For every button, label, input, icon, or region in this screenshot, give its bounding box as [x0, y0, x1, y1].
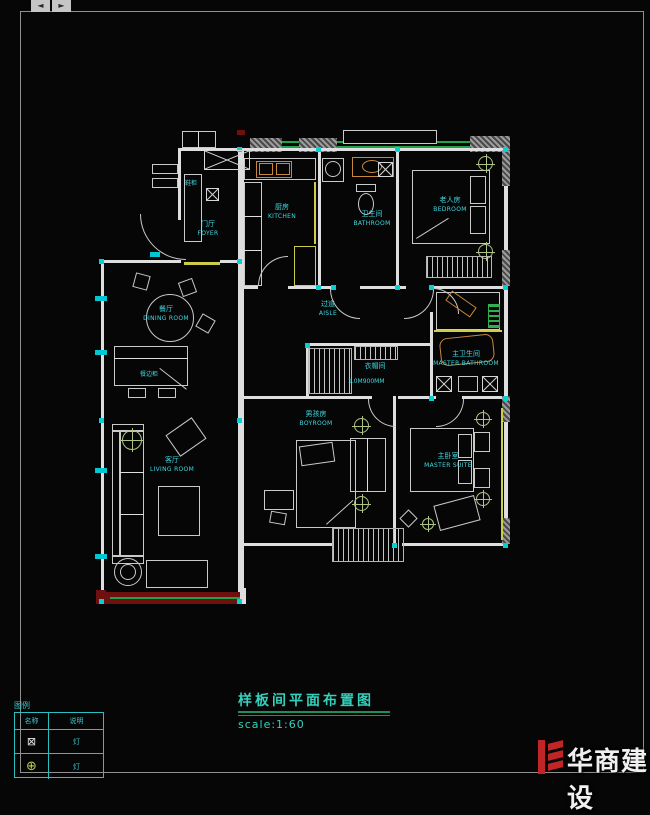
drawing-title: 样板间平面布置图 [238, 690, 374, 710]
window-tick [95, 554, 107, 559]
vent-shaft-icon [378, 162, 393, 177]
grip [503, 396, 508, 401]
wall-column [502, 518, 510, 544]
room-label-living-room: 客厅 LIVING ROOM [138, 456, 206, 474]
coffee-table [158, 486, 200, 536]
legend-header-desc: 说明 [49, 713, 104, 730]
floor-drain-icon [206, 188, 219, 201]
ceiling-lamp-icon [422, 518, 434, 530]
bedroom-bench [433, 495, 480, 531]
grip [395, 285, 400, 290]
balcony-rail [343, 130, 437, 144]
room-label-dining: 餐厅 DINING ROOM [132, 305, 200, 323]
legend-symbol-box-x-icon: ⊠ [15, 730, 49, 754]
room-label-boy-room: 男孩房 BOYROOM [282, 410, 350, 428]
window-tick [95, 468, 107, 473]
grip [316, 147, 321, 152]
grip [395, 147, 400, 152]
wall [504, 148, 508, 546]
room-label-cloakroom: 衣帽间 [342, 362, 408, 372]
watermark: 华商建设 [536, 736, 650, 778]
wall [434, 286, 508, 289]
entry-step [152, 164, 178, 174]
fridge [294, 246, 316, 286]
grip [503, 147, 508, 152]
counter-edge [314, 182, 316, 244]
wall [240, 543, 334, 546]
armchair [165, 417, 206, 457]
entry-step [152, 178, 178, 188]
grip [429, 396, 434, 401]
sideboard-label: 餐边柜 [140, 371, 158, 378]
window-tick [95, 296, 107, 301]
grip [503, 285, 508, 290]
grip [331, 285, 336, 290]
wall [288, 286, 332, 289]
boy-room-door-arc [368, 399, 396, 427]
legend-title: 图例 [14, 700, 30, 711]
grip [237, 599, 242, 604]
chair [178, 278, 197, 297]
kitchen-door-arc [258, 256, 288, 286]
logo-stripe-icon [548, 760, 563, 771]
legend-header-name: 名称 [15, 713, 49, 730]
master-suite-door-arc [436, 399, 464, 427]
threshold-strip [434, 330, 502, 332]
wall [240, 148, 508, 151]
logo-stripe-icon [548, 740, 563, 751]
logo-stripe-icon [548, 750, 563, 761]
shoe-cabinet-label: 鞋柜 [185, 180, 197, 187]
wall [402, 543, 508, 546]
washer-drum [325, 161, 341, 177]
nightstand [474, 468, 490, 488]
cloakroom-shelf-top [354, 346, 398, 360]
cloakroom-dimension: 1.0M900MM [348, 378, 385, 385]
grip [237, 418, 242, 423]
wardrobe [350, 438, 386, 492]
wardrobe-hatch [426, 256, 492, 278]
kitchen-cabinets [244, 182, 262, 286]
window-tick [95, 350, 107, 355]
room-label-master-bathroom: 主卫生间 MASTER BATHROOM [424, 350, 508, 368]
cabinet-strip [184, 262, 220, 265]
desk-chair [269, 511, 287, 526]
room-label-bathroom: 卫生间 BATHROOM [336, 210, 408, 228]
wall [101, 260, 181, 263]
floor-lamp-icon [122, 430, 142, 450]
ceiling-lamp-icon [476, 492, 490, 506]
watermark-text: 华商建设 [567, 741, 650, 815]
meter-box-divider [198, 131, 199, 148]
grip [99, 259, 104, 264]
legend-desc: 灯 [49, 754, 104, 779]
ceiling-lamp-icon [476, 412, 490, 426]
cabinet-divider [244, 250, 262, 251]
stool [158, 388, 176, 398]
floor-drain-icon [436, 376, 452, 392]
room-label-foyer: 门厅 FOYER [176, 220, 240, 238]
sink-basin [276, 163, 290, 175]
stool [128, 388, 146, 398]
wall-column [502, 250, 510, 286]
bench-seat-line [114, 358, 188, 359]
toilet-tank [356, 184, 376, 192]
room-label-bedroom: 老人房 BEDROOM [414, 196, 486, 214]
window-strip-yellow [501, 408, 503, 540]
wardrobe-divider [367, 438, 368, 492]
grip [99, 599, 104, 604]
window-tick [150, 252, 160, 257]
floor-drain-icon [482, 376, 498, 392]
room-label-kitchen: 厨房 KITCHEN [250, 203, 314, 221]
wall [101, 260, 104, 602]
wall [318, 148, 321, 289]
grip [237, 259, 242, 264]
sofa-cushion-line [120, 514, 144, 515]
window-line [110, 597, 240, 599]
wall [178, 148, 181, 220]
sink-basin [259, 163, 273, 175]
legend-table: 名称 说明 ⊠ 灯 ⊕ 灯 [14, 712, 104, 778]
grip [99, 418, 104, 423]
ceiling-lamp-icon [354, 496, 369, 511]
pouf [399, 509, 417, 527]
red-wall-tick [237, 130, 245, 135]
plant-inner [120, 564, 136, 580]
tv-cabinet [146, 560, 208, 588]
floor-plan: 鞋柜 餐边柜 [0, 0, 650, 778]
title-underline [238, 711, 390, 713]
desk [264, 490, 294, 510]
legend-desc: 灯 [49, 730, 104, 754]
laundry-rack [488, 304, 500, 328]
grip [429, 285, 434, 290]
room-label-aisle: 过道 AISLE [296, 300, 360, 318]
meter-box [182, 131, 216, 148]
chair [132, 272, 150, 290]
floor-tile [458, 376, 478, 392]
logo-bar-icon [538, 740, 545, 774]
ceiling-lamp-icon [354, 418, 369, 433]
legend-symbol-crosshair-icon: ⊕ [15, 754, 49, 779]
grip [316, 285, 321, 290]
wall-column [502, 150, 510, 186]
drawing-scale: scale:1:60 [238, 718, 305, 731]
room-label-master-suite: 主卧室 MASTER SUITE [408, 452, 488, 470]
grip [503, 543, 508, 548]
nightstand [474, 432, 490, 452]
sofa-back [112, 430, 120, 556]
ceiling-lamp-icon [478, 156, 493, 171]
grip [392, 543, 397, 548]
title-underline [238, 715, 390, 716]
dining-bench [114, 346, 188, 386]
